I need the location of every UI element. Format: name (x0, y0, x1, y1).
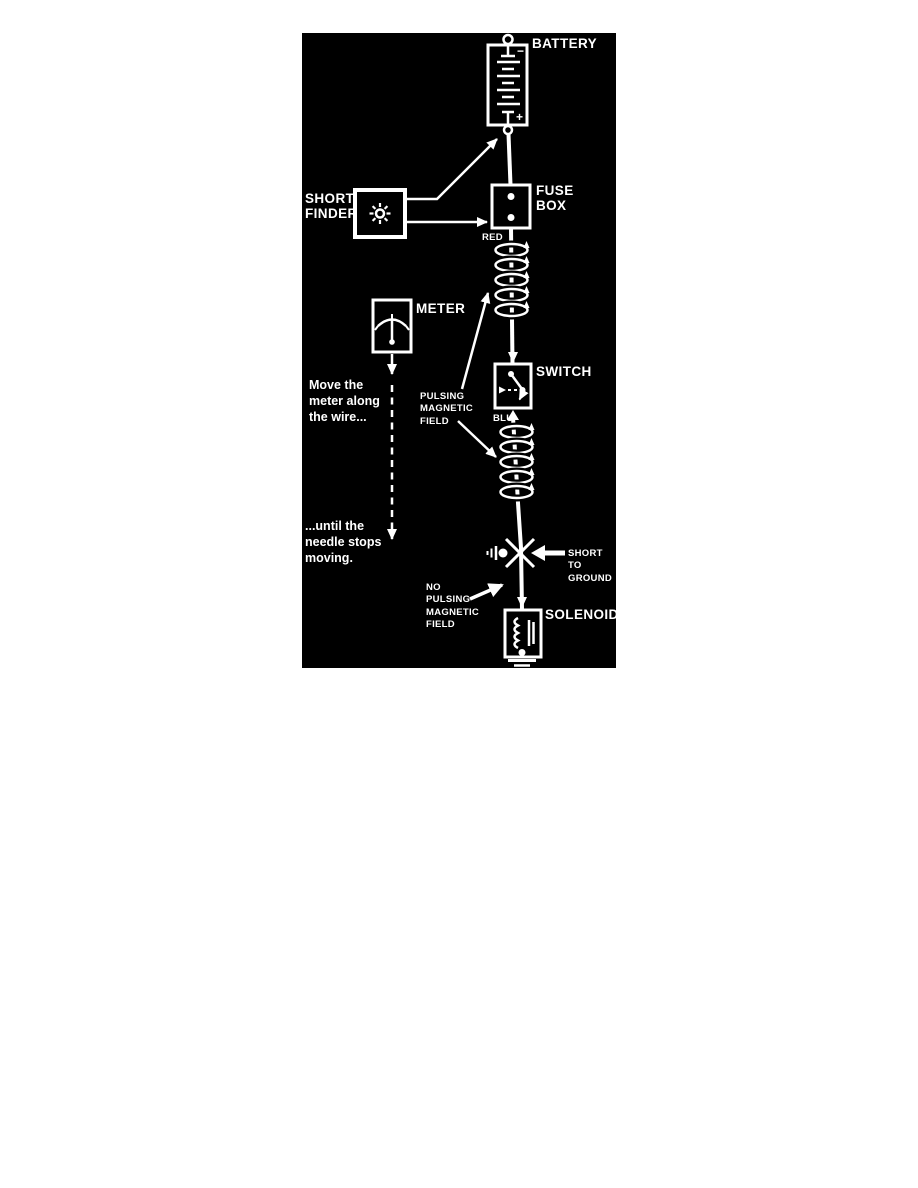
blue-wire-label: BLU (493, 413, 513, 425)
pulsing-field-upper-arrow (462, 293, 488, 389)
battery-label: BATTERY (532, 36, 597, 51)
gauge-icon (375, 314, 409, 345)
move-meter-text: Move the meter along the wire... (309, 377, 380, 425)
no-pulsing-field-label: NO PULSING MAGNETIC FIELD (426, 582, 479, 631)
coil-winding-icon (515, 618, 519, 648)
solenoid-label: SOLENOID (545, 607, 619, 622)
spark-icon (488, 546, 508, 560)
battery-bottom-terminal-icon (504, 126, 512, 134)
until-needle-text: ...until the needle stops moving. (305, 518, 381, 566)
sun-icon (370, 203, 391, 224)
short-finder-label: SHORT FINDER (305, 191, 358, 221)
fuse-box-symbol (492, 185, 530, 228)
red-wire-label: RED (482, 232, 503, 244)
fuse-box-label: FUSE BOX (536, 183, 574, 213)
battery-plates-icon (497, 62, 520, 104)
short-finder-symbol (355, 190, 405, 237)
meter-label: METER (416, 301, 465, 316)
battery-top-terminal-icon (504, 35, 513, 44)
short-to-ground-pointer-arrow (531, 545, 565, 561)
switch-label: SWITCH (536, 364, 592, 379)
diagram-panel: BATTERY − + FUSE BOX SHORT FINDER RED ME… (302, 33, 616, 668)
ground-icon (508, 661, 536, 669)
battery-plus-sign: + (516, 111, 523, 123)
battery-minus-sign: − (517, 45, 524, 57)
short-to-ground-label: SHORT TO GROUND (568, 548, 616, 585)
short-finder-to-battery-arrow (405, 139, 497, 199)
page: BATTERY − + FUSE BOX SHORT FINDER RED ME… (0, 0, 918, 1188)
switch-symbol (495, 364, 531, 420)
meter-symbol (373, 300, 411, 352)
solenoid-symbol (505, 610, 541, 668)
pulsing-field-label: PULSING MAGNETIC FIELD (420, 391, 473, 428)
